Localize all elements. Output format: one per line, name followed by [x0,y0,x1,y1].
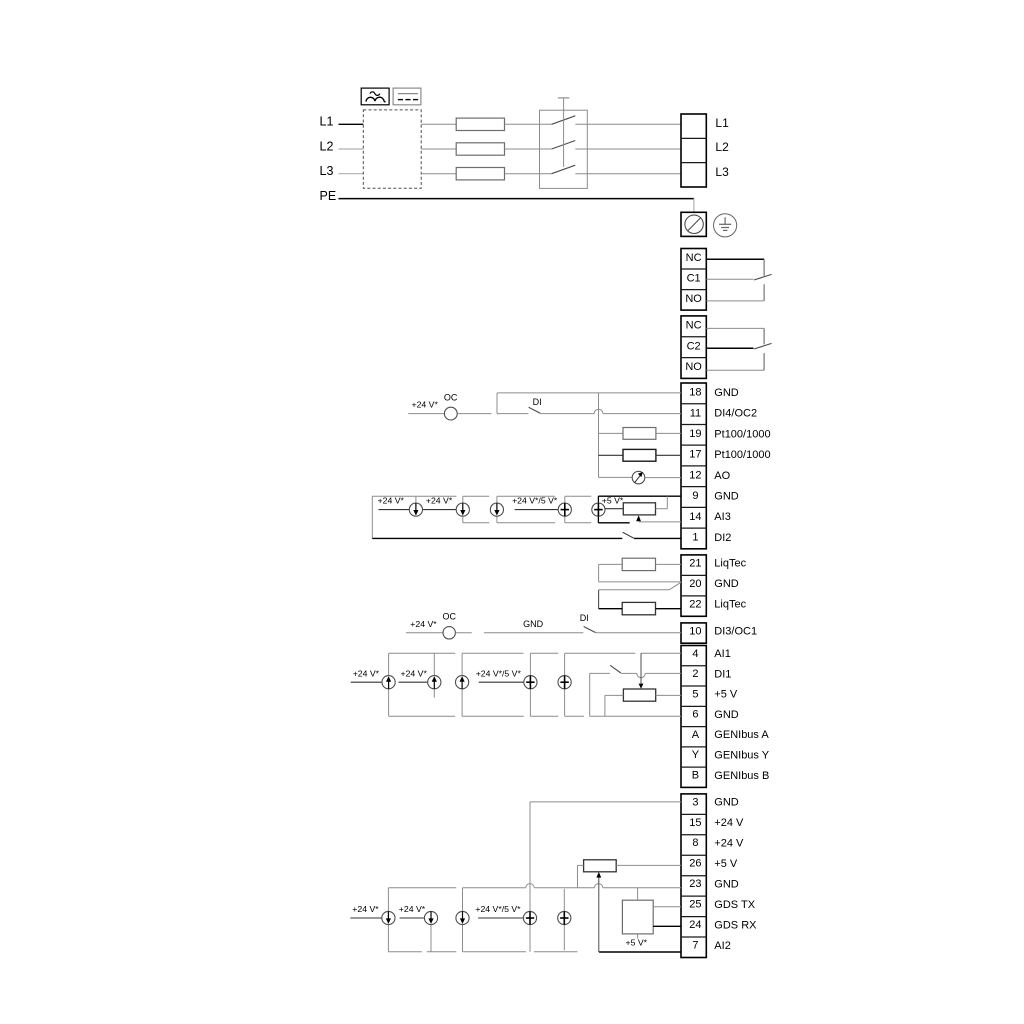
svg-text:DI3/OC1: DI3/OC1 [714,626,757,638]
svg-text:2: 2 [692,668,698,680]
svg-text:C1: C1 [687,273,701,285]
svg-text:GND: GND [714,387,739,399]
svg-text:15: 15 [689,817,701,829]
svg-text:DI2: DI2 [714,532,731,544]
svg-text:11: 11 [690,407,701,419]
svg-text:L3: L3 [320,164,334,178]
svg-text:+24 V*: +24 V* [410,619,437,629]
svg-text:DI1: DI1 [714,668,731,680]
svg-text:+24 V*: +24 V* [352,904,379,914]
svg-text:Pt100/1000: Pt100/1000 [714,428,770,440]
svg-text:AI3: AI3 [714,511,731,523]
svg-text:+24 V*: +24 V* [401,668,428,678]
svg-text:+24 V*: +24 V* [426,496,453,506]
svg-text:+5 V: +5 V [714,858,738,870]
svg-text:7: 7 [692,939,698,951]
svg-text:6: 6 [692,709,698,721]
svg-text:LiqTec: LiqTec [714,558,746,570]
svg-text:DI4/OC2: DI4/OC2 [714,408,757,420]
svg-text:23: 23 [689,878,701,890]
svg-text:OC: OC [444,393,458,403]
svg-text:+24 V: +24 V [714,838,744,850]
svg-text:GND: GND [523,619,544,629]
svg-text:L1: L1 [715,116,729,130]
svg-text:GENIbus Y: GENIbus Y [714,749,769,761]
svg-text:GND: GND [714,709,739,721]
svg-text:21: 21 [689,557,701,569]
svg-text:20: 20 [689,578,701,590]
svg-text:GENIbus A: GENIbus A [714,729,769,741]
svg-text:B: B [692,769,699,781]
svg-text:GND: GND [714,878,739,890]
svg-text:L1: L1 [320,115,334,129]
svg-text:+24 V*/5 V*: +24 V*/5 V* [475,904,521,914]
svg-text:+5 V: +5 V [714,689,738,701]
svg-text:+24 V*: +24 V* [353,668,380,678]
svg-text:OC: OC [443,612,457,622]
svg-text:26: 26 [689,858,701,870]
svg-text:4: 4 [692,648,698,660]
svg-text:GND: GND [714,490,739,502]
svg-text:GND: GND [714,797,739,809]
svg-text:GDS RX: GDS RX [714,919,757,931]
svg-text:LiqTec: LiqTec [714,599,746,611]
svg-text:14: 14 [689,511,701,523]
svg-text:AI2: AI2 [714,940,731,952]
svg-text:A: A [692,729,700,741]
svg-text:17: 17 [689,449,701,461]
svg-text:DI: DI [580,613,589,623]
svg-text:L3: L3 [715,165,729,179]
svg-text:+24 V: +24 V [714,817,744,829]
svg-text:+24 V*: +24 V* [412,399,439,409]
svg-text:+24 V*: +24 V* [399,904,426,914]
svg-text:C2: C2 [687,340,701,352]
svg-text:5: 5 [692,688,698,700]
svg-text:PE: PE [320,189,337,203]
svg-text:GND: GND [714,578,739,590]
svg-text:+24 V*/5 V*: +24 V*/5 V* [476,668,522,678]
svg-text:1: 1 [692,532,698,544]
svg-text:18: 18 [689,387,701,399]
svg-text:24: 24 [689,919,701,931]
svg-text:25: 25 [689,899,701,911]
svg-text:Pt100/1000: Pt100/1000 [714,449,770,461]
svg-text:+24 V*/5 V*: +24 V*/5 V* [512,496,558,506]
svg-text:+5 V*: +5 V* [602,496,624,506]
svg-text:NO: NO [685,293,702,305]
svg-text:NC: NC [686,252,702,264]
svg-text:+24 V*: +24 V* [378,496,405,506]
svg-text:L2: L2 [320,139,334,153]
svg-text:+5 V*: +5 V* [626,938,648,948]
svg-text:9: 9 [692,490,698,502]
svg-text:22: 22 [689,598,701,610]
svg-text:3: 3 [692,796,698,808]
svg-text:19: 19 [689,428,701,440]
svg-text:GDS TX: GDS TX [714,899,755,911]
svg-text:DI: DI [533,397,542,407]
svg-text:8: 8 [692,837,698,849]
svg-text:GENIbus B: GENIbus B [714,770,769,782]
svg-text:NO: NO [685,361,702,373]
svg-text:AI1: AI1 [714,648,731,660]
svg-text:12: 12 [689,469,701,481]
svg-text:10: 10 [689,625,701,637]
svg-text:L2: L2 [715,140,729,154]
svg-text:Y: Y [692,749,700,761]
svg-text:NC: NC [686,320,702,332]
svg-text:AO: AO [714,470,730,482]
